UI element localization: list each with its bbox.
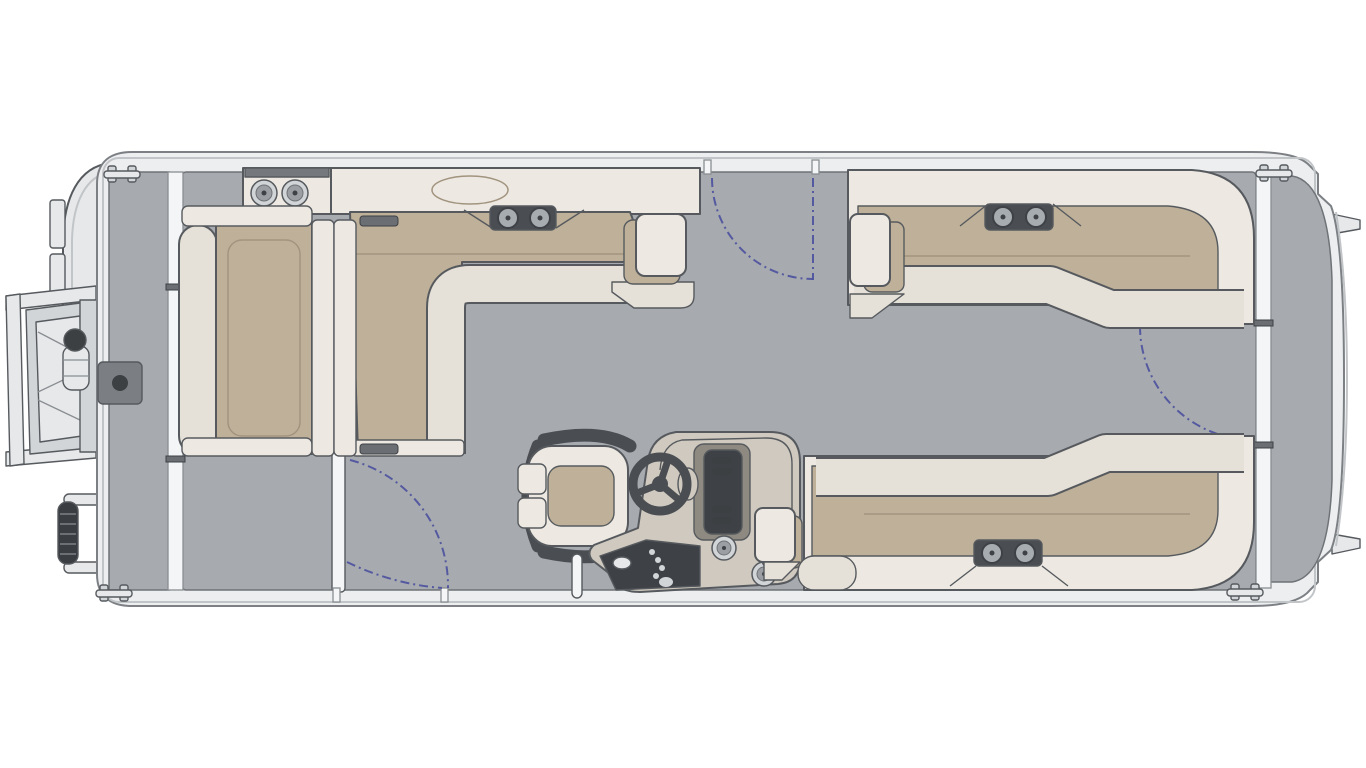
couch-cushion — [216, 224, 312, 454]
stern-rail — [1256, 174, 1271, 588]
chair-side-pad — [518, 498, 546, 528]
couch-backrest — [334, 220, 356, 456]
stern-port-l-lounge — [848, 170, 1254, 324]
couch-backrest — [312, 220, 334, 456]
deck-table-mount — [98, 362, 142, 404]
bow-step — [50, 200, 65, 248]
ski-pylon — [572, 554, 582, 598]
hinge — [360, 444, 398, 454]
pontoon-floor-plan — [0, 0, 1366, 768]
floor-plan-canvas — [0, 0, 1366, 768]
armrest — [612, 214, 694, 308]
hinge — [360, 216, 398, 226]
aft-facing-couch — [182, 206, 356, 456]
instrument-panel — [694, 444, 750, 540]
chair-cushion — [548, 466, 614, 526]
seat-end-cap — [182, 206, 312, 226]
stern-platform — [1266, 176, 1332, 582]
ladder-latch — [63, 329, 89, 390]
ignition-switch — [613, 557, 631, 569]
seat-end-cap — [798, 556, 856, 590]
stern-starboard-l-lounge — [755, 436, 1254, 590]
open-gate-panel — [332, 452, 345, 592]
seat-end-cap — [182, 438, 312, 456]
fender — [58, 502, 78, 564]
chair-side-pad — [518, 464, 546, 494]
